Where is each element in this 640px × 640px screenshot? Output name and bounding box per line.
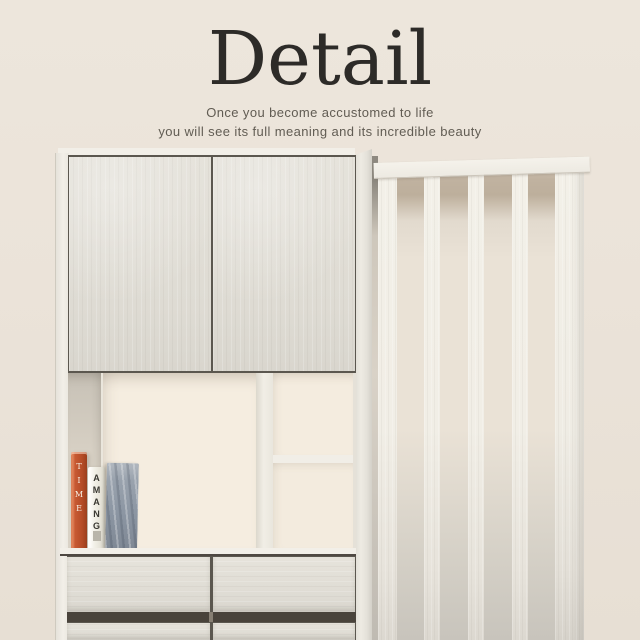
cabinet-door-section bbox=[68, 155, 356, 373]
cabinet-door-left bbox=[69, 157, 211, 371]
drawer-bottom-right bbox=[213, 623, 356, 640]
partition-gap bbox=[440, 169, 468, 640]
shelf-vertical-divider bbox=[256, 373, 273, 548]
cabinet: TIME AMANG bbox=[55, 148, 372, 640]
book-spine: TIME bbox=[71, 452, 87, 548]
publisher-mark bbox=[93, 531, 101, 541]
drawer-top-left bbox=[67, 557, 210, 612]
page-title: Detail bbox=[0, 24, 640, 94]
book-patterned bbox=[105, 463, 139, 550]
book-spine-text: TIME bbox=[75, 462, 84, 548]
partition-slat bbox=[512, 169, 528, 640]
partition-gap bbox=[397, 169, 424, 640]
partition-left-stile bbox=[378, 169, 397, 640]
shelf-right-lower-cubby bbox=[273, 463, 353, 548]
partition-gap bbox=[528, 169, 555, 640]
cabinet-right-side-panel bbox=[355, 148, 372, 640]
slatted-partition bbox=[378, 161, 584, 640]
shelf-right-upper-cubby bbox=[273, 373, 353, 455]
open-shelf-section: TIME AMANG bbox=[68, 373, 356, 548]
drawer-pull-groove bbox=[67, 612, 356, 622]
drawer-row-bottom bbox=[67, 622, 356, 640]
counter-edge bbox=[60, 548, 356, 556]
partition-gap bbox=[484, 169, 512, 640]
drawer-row-top bbox=[67, 556, 356, 612]
drawer-top-right bbox=[213, 557, 356, 612]
partition-slat bbox=[424, 169, 440, 640]
subtitle-line-2: you will see its full meaning and its in… bbox=[0, 123, 640, 140]
book-amang: AMANG bbox=[88, 467, 105, 548]
cabinet-door-right bbox=[213, 157, 355, 371]
drawer-bottom-left bbox=[67, 623, 210, 640]
book-time: TIME bbox=[71, 452, 87, 548]
partition-slat bbox=[468, 169, 484, 640]
subtitle-line-1: Once you become accustomed to life bbox=[0, 104, 640, 121]
partition-right-post bbox=[555, 169, 584, 640]
shelf-right-wall bbox=[353, 373, 356, 548]
header: Detail Once you become accustomed to lif… bbox=[0, 24, 640, 142]
product-detail-image: Detail Once you become accustomed to lif… bbox=[0, 0, 640, 640]
